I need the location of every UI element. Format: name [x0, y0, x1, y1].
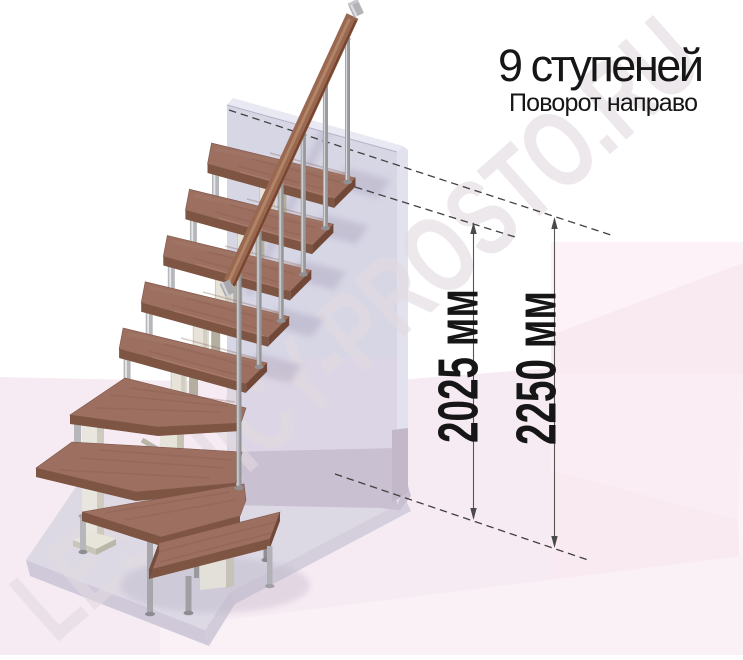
- svg-text:Поворот направо: Поворот направо: [509, 89, 698, 117]
- svg-text:9 ступеней: 9 ступеней: [498, 40, 704, 91]
- svg-text:2250 мм: 2250 мм: [505, 291, 569, 445]
- svg-text:2025 мм: 2025 мм: [427, 289, 491, 443]
